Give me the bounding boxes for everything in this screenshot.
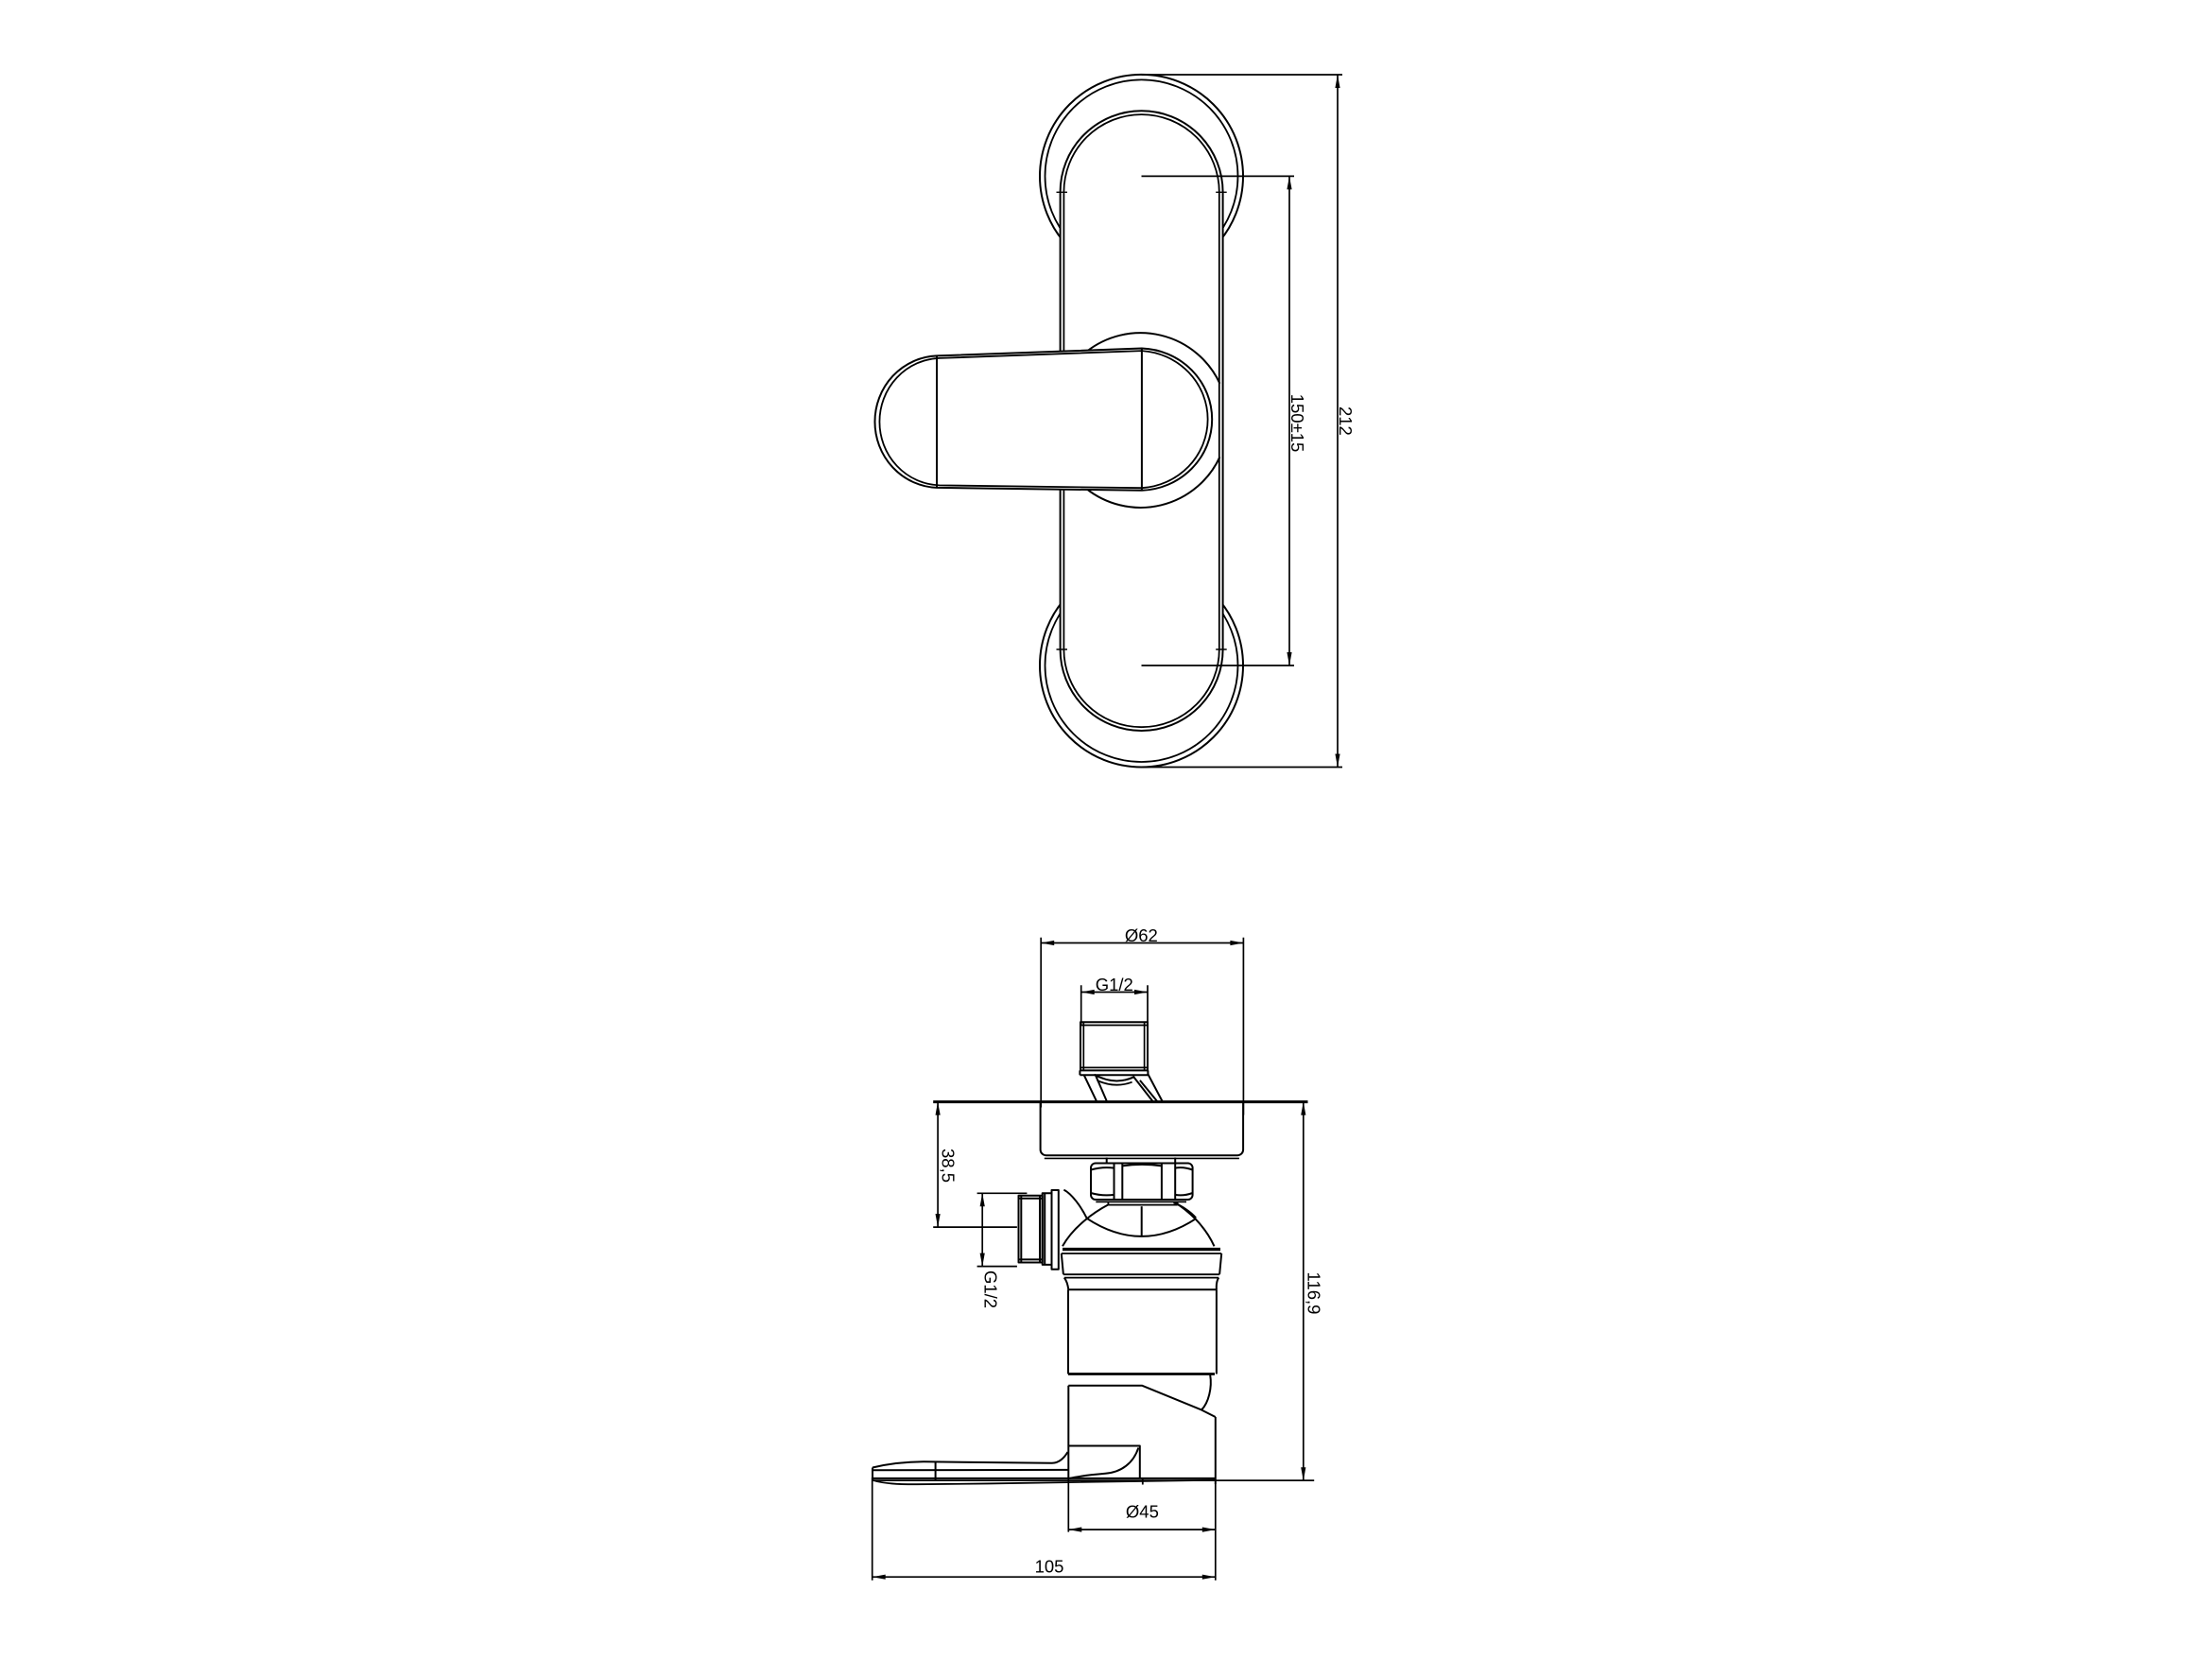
svg-text:Ø45: Ø45 [1126, 1502, 1159, 1522]
svg-text:105: 105 [1035, 1557, 1064, 1577]
svg-text:212: 212 [1336, 406, 1356, 436]
svg-text:38,5: 38,5 [939, 1149, 959, 1183]
svg-text:Ø62: Ø62 [1125, 925, 1158, 945]
svg-text:G1/2: G1/2 [1096, 975, 1133, 994]
svg-text:116,9: 116,9 [1305, 1272, 1324, 1315]
svg-text:G1/2: G1/2 [981, 1270, 1001, 1308]
svg-text:150±15: 150±15 [1287, 394, 1307, 453]
